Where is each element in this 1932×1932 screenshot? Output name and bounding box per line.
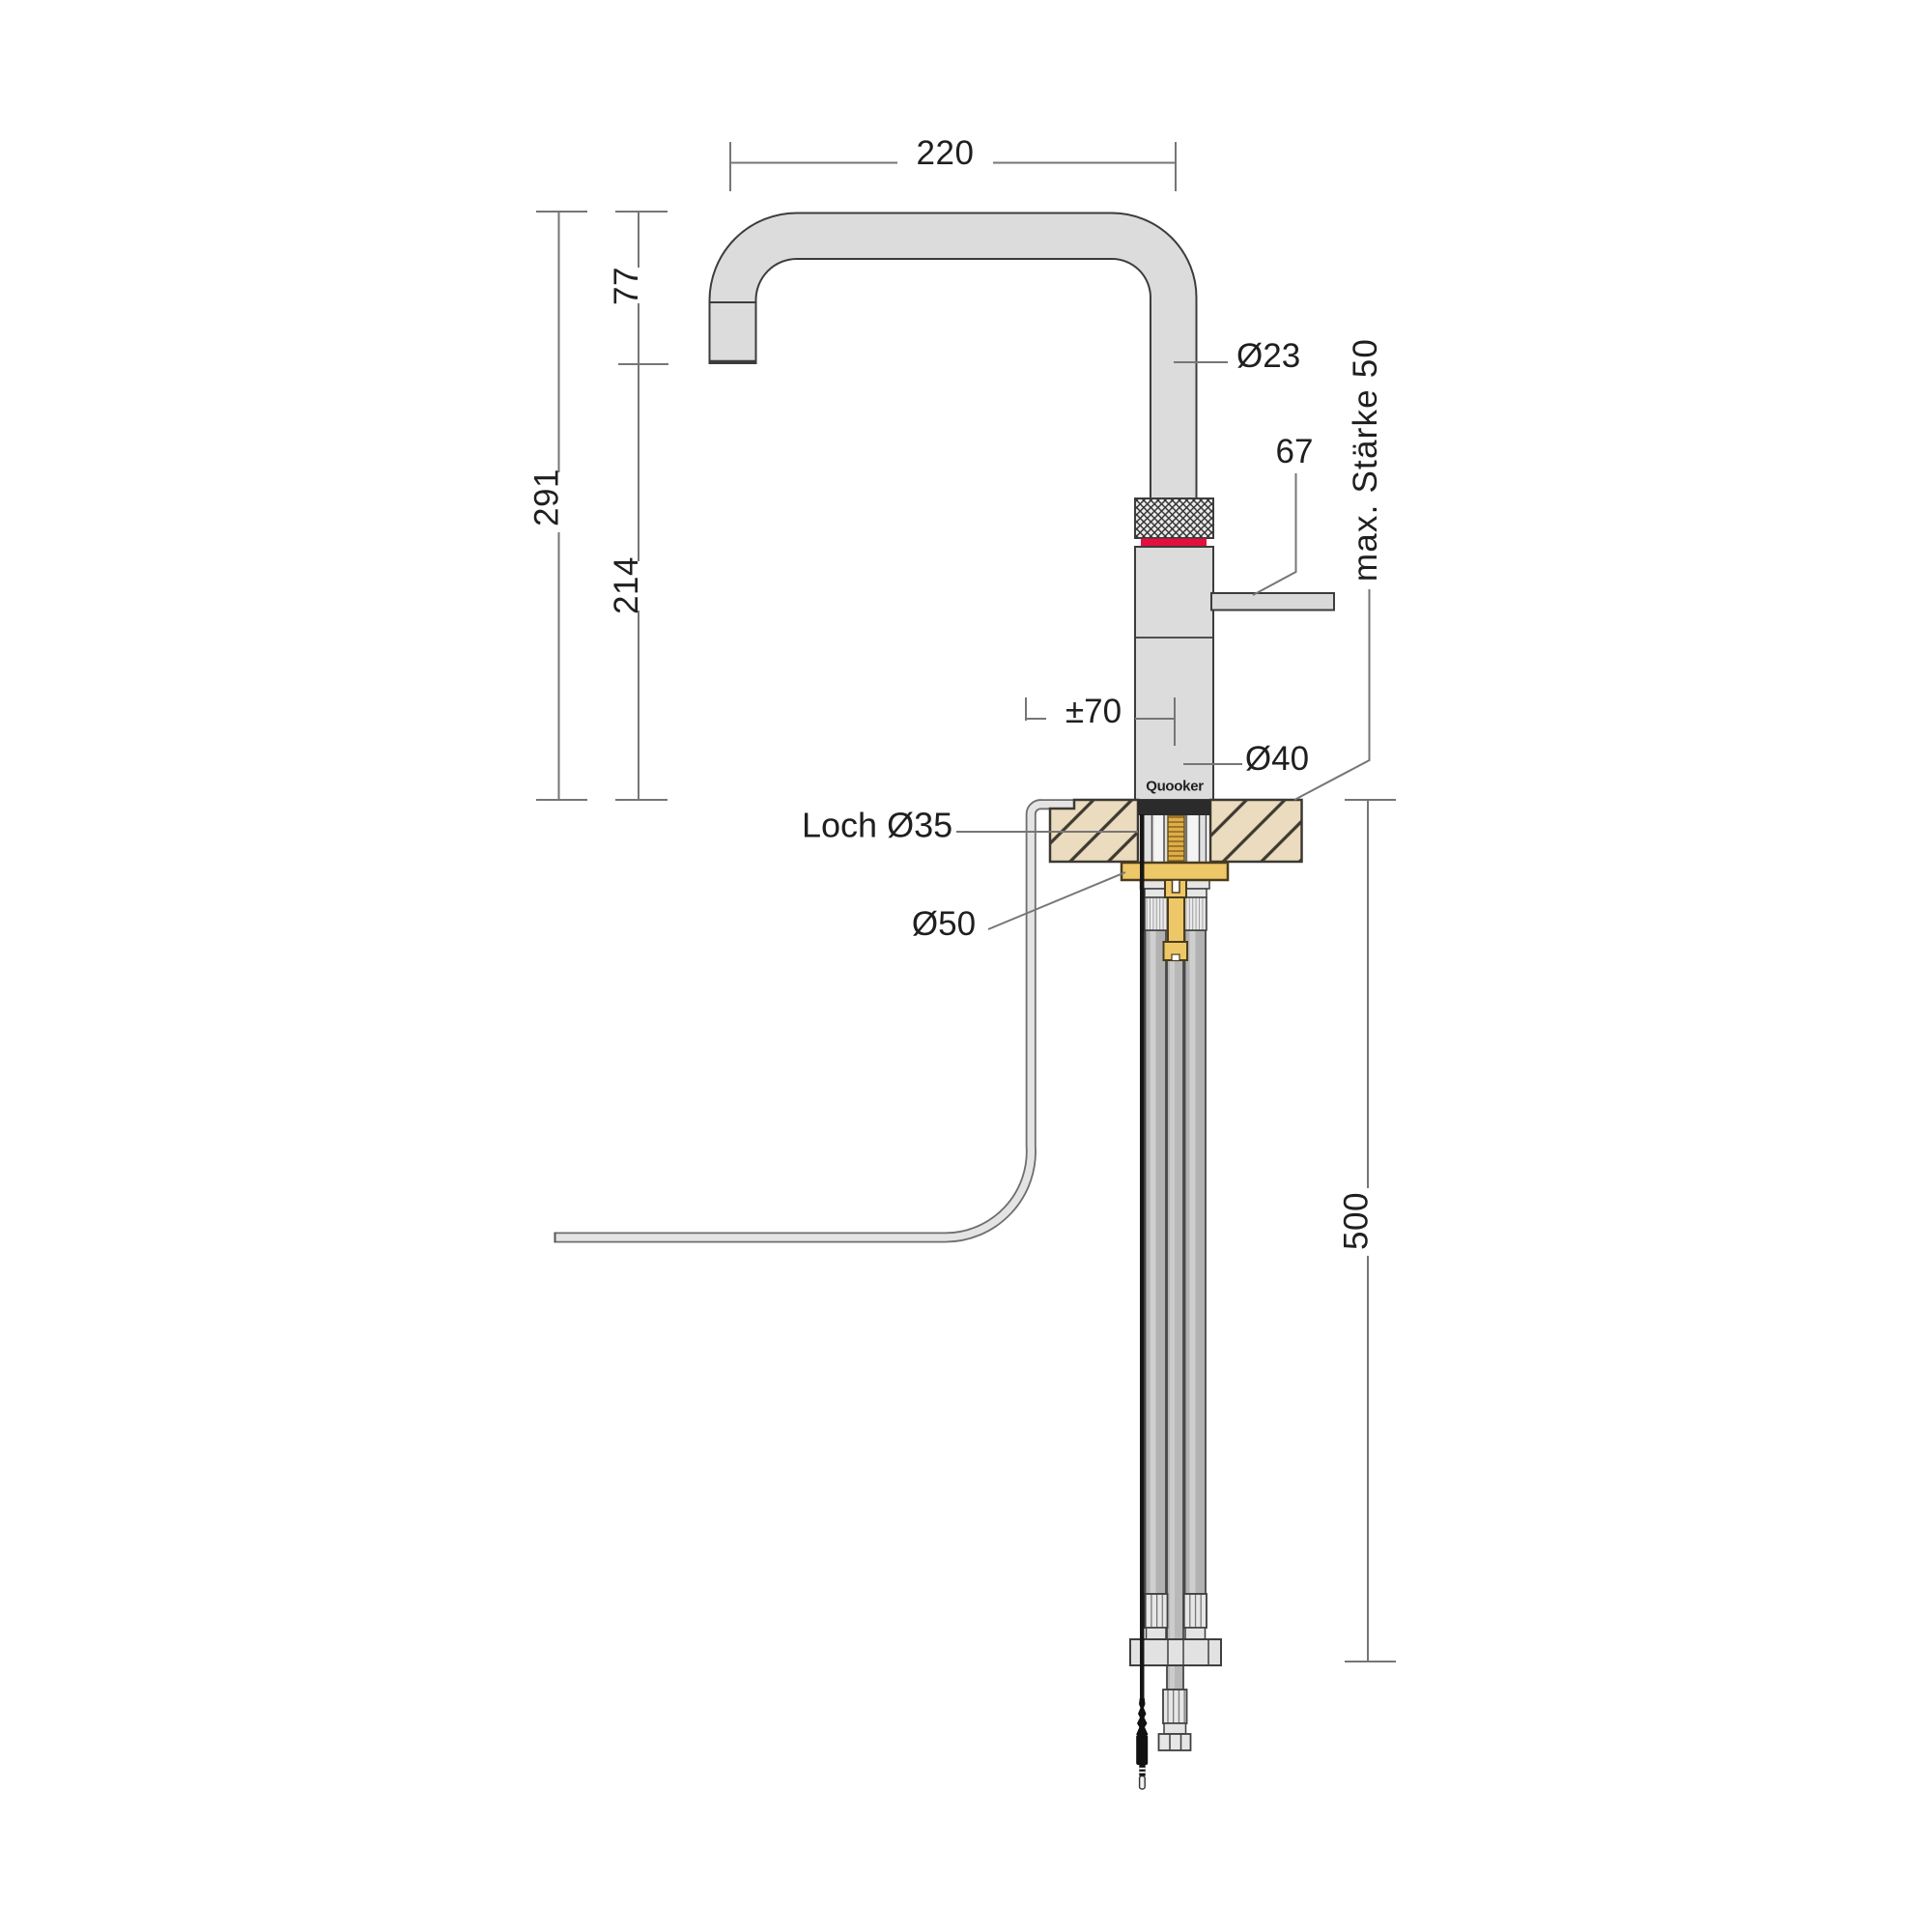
svg-text:214: 214 bbox=[608, 556, 645, 614]
svg-text:220: 220 bbox=[917, 134, 975, 172]
svg-text:291: 291 bbox=[528, 469, 566, 526]
svg-text:Ø23: Ø23 bbox=[1236, 337, 1300, 375]
svg-text:max. Stärke 50: max. Stärke 50 bbox=[1347, 338, 1384, 582]
svg-text:77: 77 bbox=[608, 267, 645, 305]
svg-text:±70: ±70 bbox=[1065, 693, 1122, 730]
svg-text:Ø40: Ø40 bbox=[1245, 740, 1309, 778]
svg-text:Ø50: Ø50 bbox=[912, 905, 976, 943]
svg-text:67: 67 bbox=[1276, 433, 1314, 470]
svg-text:Loch Ø35: Loch Ø35 bbox=[802, 806, 952, 845]
svg-text:Quooker: Quooker bbox=[1146, 779, 1204, 795]
svg-text:500: 500 bbox=[1338, 1192, 1376, 1250]
